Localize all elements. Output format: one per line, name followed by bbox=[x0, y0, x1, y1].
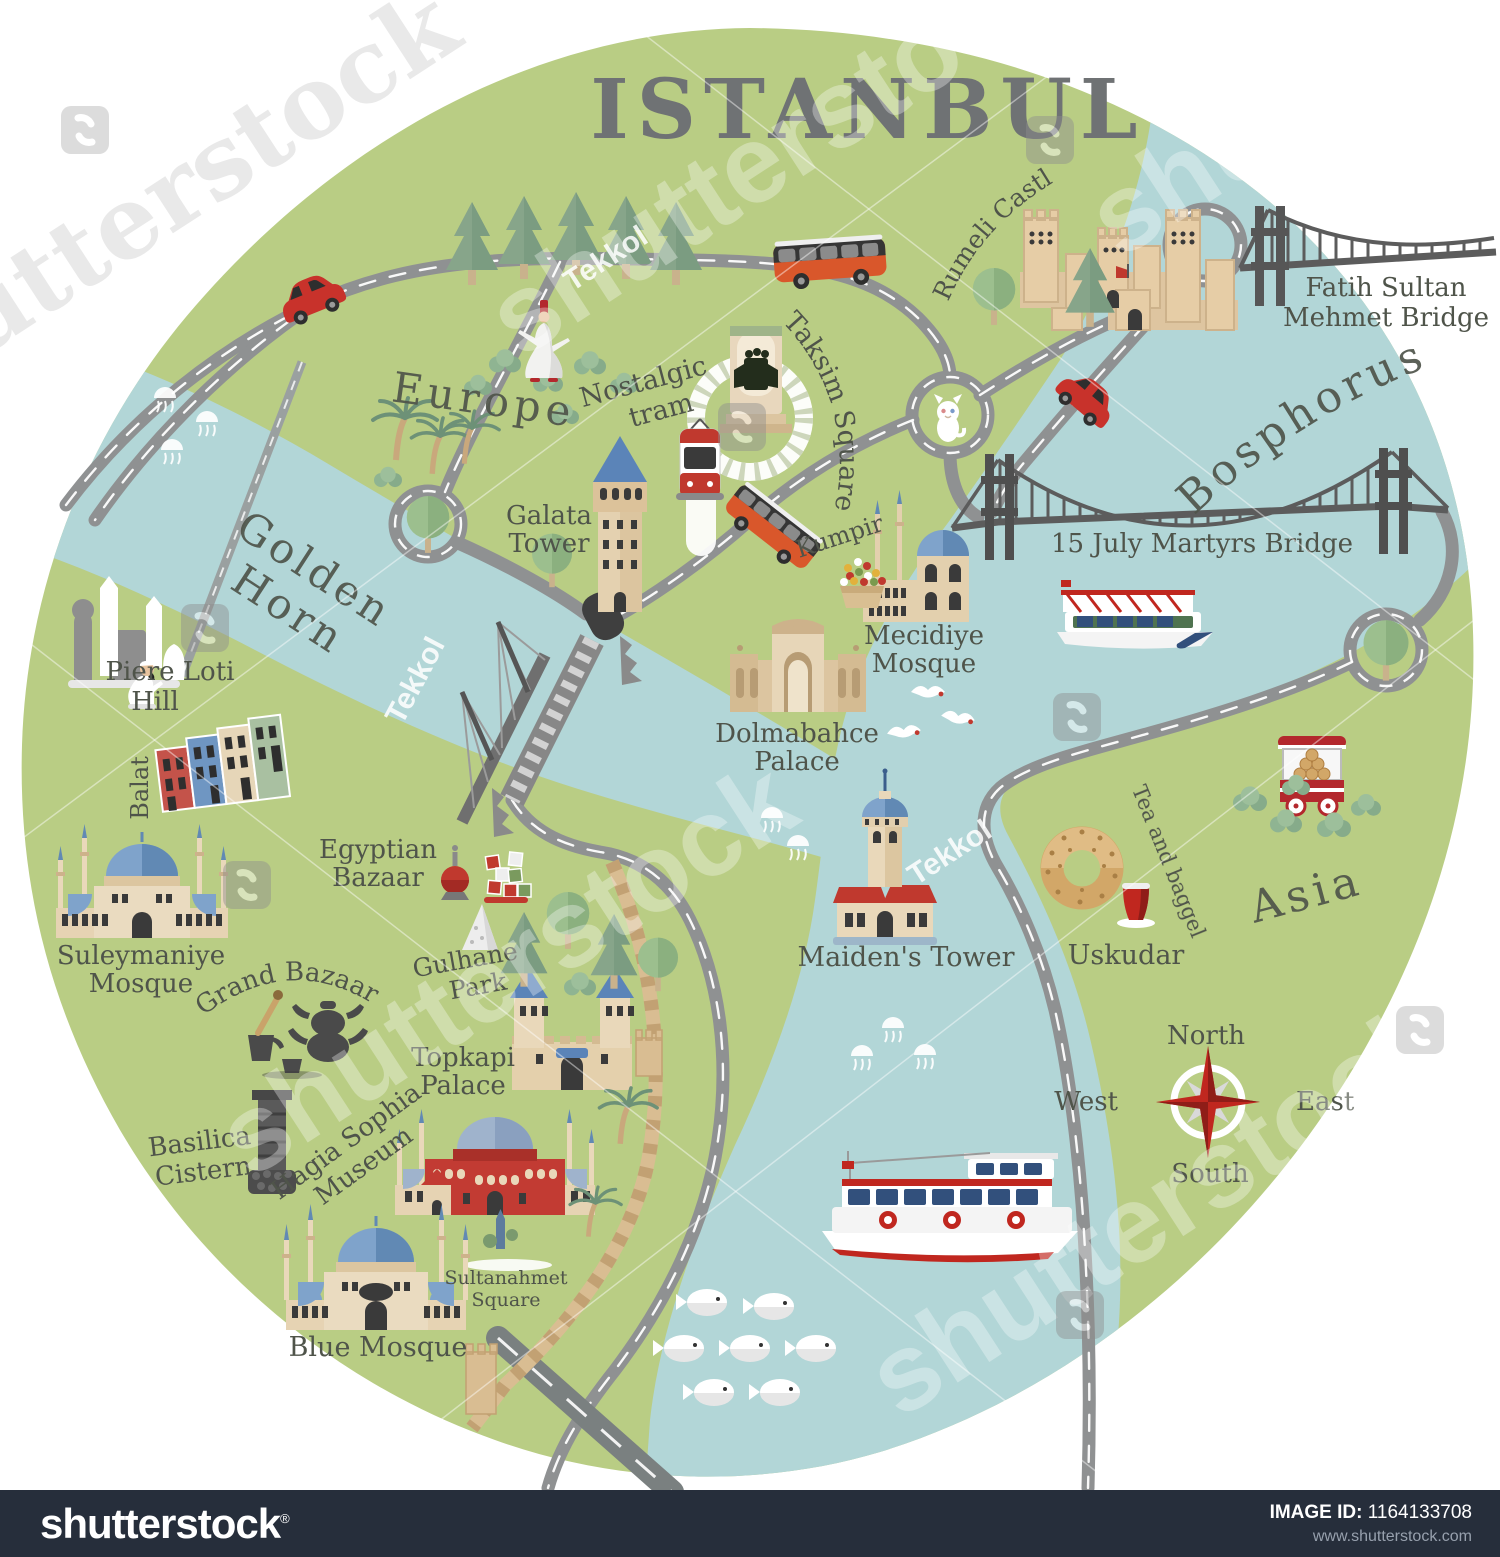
label-galata-tower: Galata Tower bbox=[506, 501, 592, 559]
svg-text:Fatih Sultan: Fatih Sultan bbox=[1305, 273, 1466, 303]
label-maidens-tower: Maiden's Tower bbox=[797, 942, 1014, 973]
blue-mosque-icon bbox=[282, 1204, 470, 1330]
label-uskudar: Uskudar bbox=[1068, 940, 1185, 971]
label-mecidiye-mosque: Mecidiye Mosque bbox=[864, 621, 984, 679]
stock-image-page: ISTANBUL Europe Golden Horn Bosphorus As… bbox=[0, 0, 1500, 1557]
label-fsm-bridge: Fatih Sultan Mehmet Bridge bbox=[1283, 273, 1489, 333]
svg-text:North: North bbox=[1167, 1021, 1245, 1051]
svg-text:Galata: Galata bbox=[506, 501, 592, 531]
svg-text:Piere Loti: Piere Loti bbox=[106, 657, 235, 687]
tram-icon bbox=[676, 419, 724, 500]
website-url: www.shutterstock.com bbox=[1270, 1526, 1472, 1548]
svg-text:Mosque: Mosque bbox=[872, 649, 976, 679]
istanbul-map-illustration: ISTANBUL Europe Golden Horn Bosphorus As… bbox=[0, 0, 1500, 1490]
label-martyrs-bridge: 15 July Martyrs Bridge bbox=[1051, 529, 1353, 559]
svg-text:Sultanahmet: Sultanahmet bbox=[445, 1267, 568, 1289]
svg-text:Tower: Tower bbox=[508, 529, 590, 559]
ferry-small-icon bbox=[1057, 580, 1213, 649]
svg-text:Mosque: Mosque bbox=[89, 969, 193, 999]
svg-text:West: West bbox=[1054, 1087, 1118, 1117]
svg-text:Mehmet Bridge: Mehmet Bridge bbox=[1283, 303, 1489, 333]
svg-text:Egyptian: Egyptian bbox=[319, 835, 437, 865]
svg-text:Hill: Hill bbox=[131, 687, 179, 717]
svg-text:Mecidiye: Mecidiye bbox=[864, 621, 984, 651]
image-metadata: IMAGE ID: 1164133708 www.shutterstock.co… bbox=[1270, 1500, 1472, 1547]
label-blue-mosque: Blue Mosque bbox=[289, 1332, 468, 1363]
shutterstock-footer-bar: shutterstock® IMAGE ID: 1164133708 www.s… bbox=[0, 1490, 1500, 1557]
image-id: IMAGE ID: 1164133708 bbox=[1270, 1500, 1472, 1526]
svg-text:Suleymaniye: Suleymaniye bbox=[57, 941, 225, 971]
label-balat: Balat bbox=[126, 756, 154, 820]
label-egyptian-bazaar: Egyptian Bazaar bbox=[319, 835, 437, 893]
shutterstock-logo: shutterstock® bbox=[40, 1500, 289, 1548]
svg-text:Square: Square bbox=[471, 1289, 540, 1311]
